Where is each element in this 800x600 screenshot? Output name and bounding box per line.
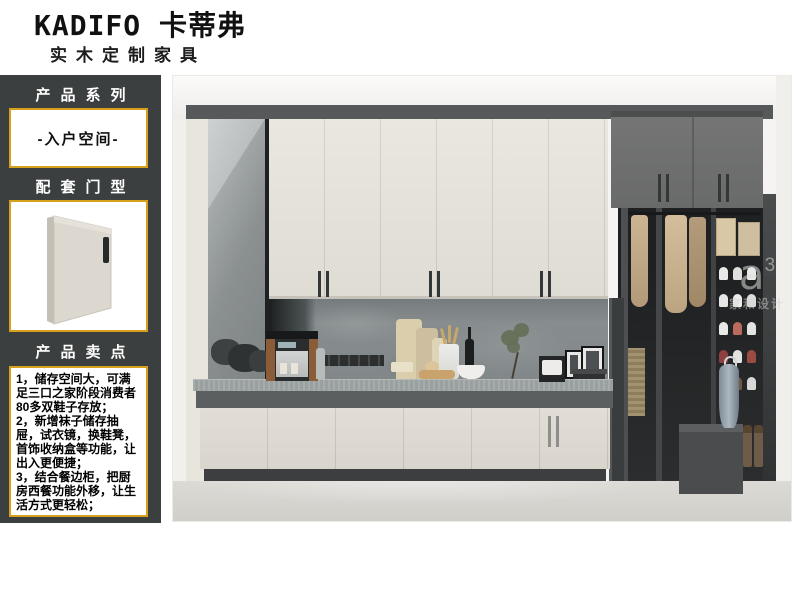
hanging-coat bbox=[631, 215, 648, 307]
wardrobe-upper-cabinets bbox=[611, 111, 763, 208]
designer-watermark: a3 家和设计 bbox=[718, 254, 792, 310]
coffee-machine bbox=[266, 331, 318, 381]
left-wall bbox=[173, 119, 186, 481]
watermark-sup: 3 bbox=[765, 255, 776, 276]
product-poster-page: { "brand": { "logo": "KADIFO 卡蒂弗", "tagl… bbox=[0, 0, 800, 600]
drawer-band bbox=[196, 391, 613, 408]
storage-box bbox=[716, 218, 736, 256]
selling-points-header: 产品卖点 bbox=[0, 341, 161, 362]
cheese-plate bbox=[391, 362, 413, 372]
brand-logo: KADIFO 卡蒂弗 bbox=[34, 4, 246, 44]
cabinet-handle-icon bbox=[548, 416, 559, 447]
door-type-header: 配套门型 bbox=[0, 176, 161, 197]
shoe-shelf bbox=[716, 337, 763, 340]
selling-point: 2，新增袜子储存抽屉，试衣镜，换鞋凳，首饰收纳盒等功能，让出入更便捷； bbox=[16, 414, 141, 470]
door-panel-box bbox=[9, 200, 148, 332]
shoe bbox=[747, 377, 756, 390]
shoe-bench bbox=[679, 424, 743, 494]
marble-highlight bbox=[208, 119, 265, 209]
cabinet-handle-icon bbox=[429, 271, 440, 297]
hanging-coat bbox=[689, 217, 706, 307]
power-outlets bbox=[320, 355, 384, 366]
plant bbox=[514, 323, 529, 337]
shoe bbox=[719, 322, 728, 335]
shoe bbox=[747, 322, 756, 335]
watermark-logo: a bbox=[739, 250, 765, 299]
cabinet-handle-icon bbox=[658, 174, 669, 202]
door-panel-image bbox=[11, 204, 146, 328]
shoe bbox=[733, 322, 742, 335]
selling-point: 1，储存空间大，可满足三口之家阶段消费者80多双鞋子存放； bbox=[16, 372, 141, 414]
kick-plate bbox=[204, 469, 606, 481]
series-header: 产品系列 bbox=[0, 84, 161, 105]
plant bbox=[507, 341, 520, 353]
door-handle-icon bbox=[103, 237, 109, 263]
cabinet-handle-icon bbox=[318, 271, 329, 297]
info-sidebar: 产品系列 -入户空间- 配套门型 产品卖点 1，储存空间大，可满足三口之家阶段消… bbox=[0, 75, 161, 523]
hanging-coat bbox=[665, 215, 687, 313]
series-value-box: -入户空间- bbox=[9, 108, 148, 168]
table-clock bbox=[539, 356, 565, 382]
woven-hanging bbox=[628, 348, 645, 416]
book-stack bbox=[573, 374, 605, 379]
bread-board bbox=[419, 370, 455, 379]
cabinet-handle-icon bbox=[718, 174, 729, 202]
wardrobe-divider bbox=[656, 208, 662, 481]
showroom-photo: a3 家和设计 bbox=[172, 75, 792, 522]
series-value: -入户空间- bbox=[38, 128, 120, 149]
boot bbox=[754, 425, 763, 467]
selling-point: 3，结合餐边柜，把厨房西餐功能外移，让生活方式更轻松； bbox=[16, 470, 141, 512]
cabinet-handle-icon bbox=[540, 271, 551, 297]
umbrella bbox=[719, 364, 739, 428]
watermark-name: 家和设计 bbox=[718, 298, 792, 310]
boot bbox=[743, 425, 752, 467]
milk-canister bbox=[316, 348, 325, 379]
shoe bbox=[747, 350, 756, 363]
brand-tagline: 实木定制家具 bbox=[50, 41, 206, 66]
hanging-rod bbox=[628, 212, 761, 215]
wooden-spoon bbox=[448, 325, 451, 343]
right-door-panel bbox=[763, 194, 776, 506]
selling-points-box: 1，储存空间大，可满足三口之家阶段消费者80多双鞋子存放； 2，新增袜子储存抽屉… bbox=[9, 366, 148, 517]
